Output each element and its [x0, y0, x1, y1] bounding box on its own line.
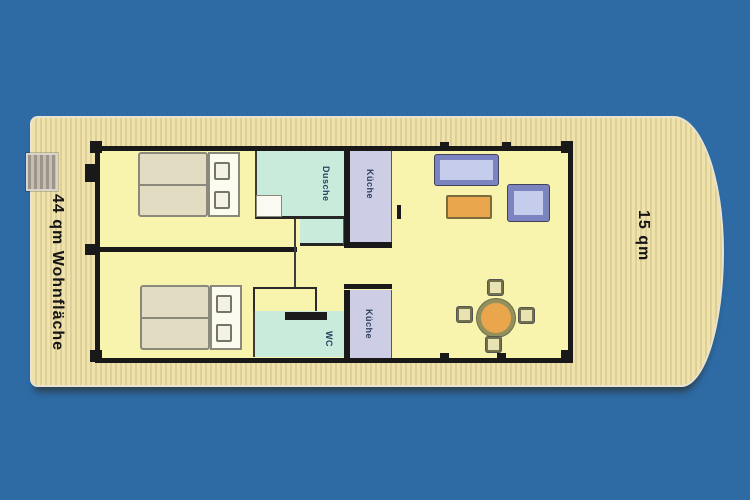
- wall-nub-entrance: [85, 164, 96, 182]
- coffee-table: [446, 195, 492, 219]
- wall-corner-post: [561, 141, 573, 153]
- terrace-area-label: 15 qm: [628, 196, 658, 276]
- wall-segment-kitchen-upper-cap: [344, 242, 392, 248]
- sofa: [435, 155, 498, 185]
- wall-segment-kitchen-lower-cap: [344, 284, 392, 289]
- living-space-label: 44 qm Wohnfläche: [42, 175, 72, 370]
- wall-nub-middle: [85, 244, 96, 255]
- bed-pillow: [214, 191, 230, 209]
- bed-headboard: [208, 152, 240, 217]
- wall-segment-corridor: [294, 219, 296, 289]
- wc-room-label: WC: [319, 324, 339, 354]
- wall-segment-middle: [95, 247, 297, 252]
- double-bed-upper: [138, 152, 240, 218]
- dining-chair: [519, 308, 534, 323]
- wall-corner-post: [90, 141, 102, 153]
- bed-pillow: [214, 162, 230, 180]
- room-shower-extension: [300, 219, 344, 246]
- bed-mattress-divider: [142, 317, 208, 319]
- bed-mattress: [138, 152, 208, 217]
- kitchen-lower-label: Küche: [358, 293, 380, 355]
- dining-chair: [486, 337, 501, 352]
- bed-headboard: [210, 285, 242, 350]
- double-bed-lower: [140, 285, 242, 351]
- wall-post: [502, 142, 511, 151]
- wc-door-vestibule: [253, 287, 317, 313]
- wc-counter: [285, 312, 327, 320]
- bed-mattress: [140, 285, 210, 350]
- wall-post: [440, 353, 449, 362]
- shower-tray: [256, 195, 282, 217]
- shower-room-label: Dusche: [316, 152, 336, 216]
- dining-chair: [488, 280, 503, 295]
- dining-set: [455, 278, 539, 358]
- wall-post: [440, 142, 449, 151]
- wall-corner-post: [561, 350, 573, 362]
- wall-stub-living: [397, 205, 401, 219]
- dining-table: [477, 299, 515, 337]
- wall-post: [497, 353, 506, 362]
- floor-plan-canvas: 44 qm Wohnfläche 15 qm Dusche Küche WC K…: [0, 0, 750, 500]
- bed-pillow: [216, 295, 232, 313]
- bed-pillow: [216, 324, 232, 342]
- wall-corner-post: [90, 350, 102, 362]
- armchair: [508, 185, 549, 221]
- bed-mattress-divider: [140, 184, 206, 186]
- kitchen-upper-label: Küche: [359, 153, 381, 215]
- dining-chair: [457, 307, 472, 322]
